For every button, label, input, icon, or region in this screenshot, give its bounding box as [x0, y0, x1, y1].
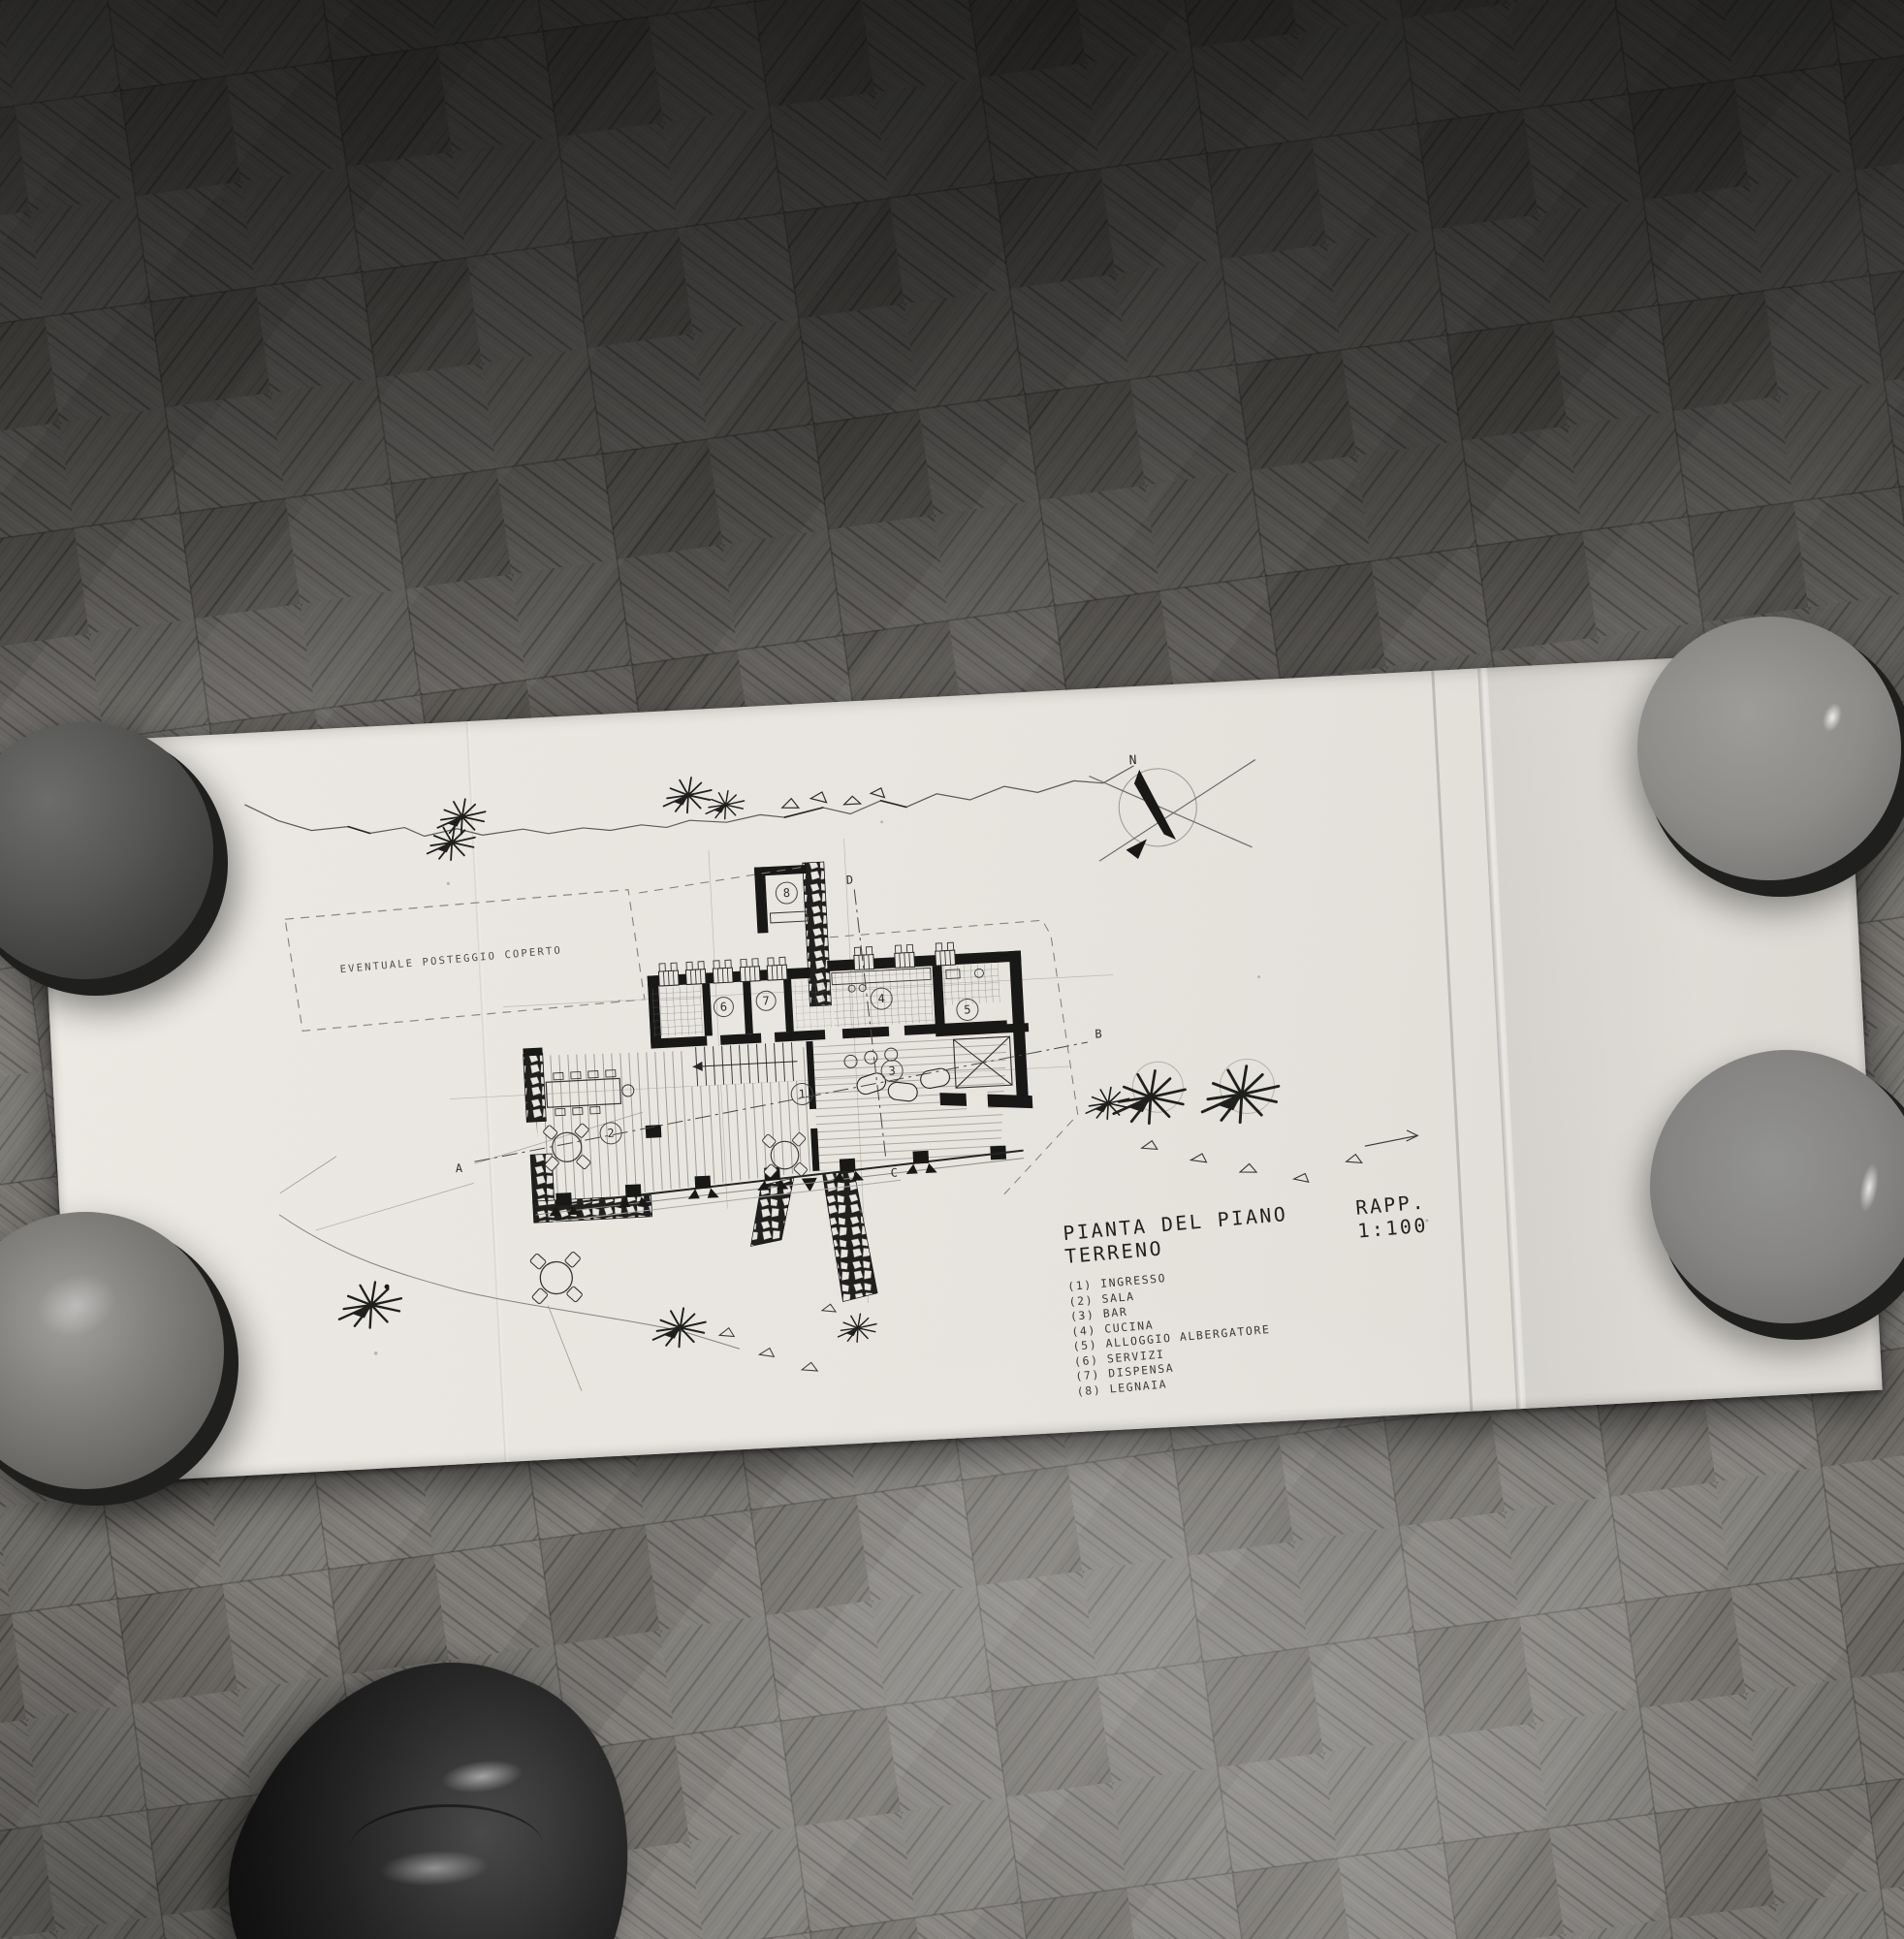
- section-marker-b: B: [1095, 1027, 1102, 1040]
- tree-symbol: [1085, 1087, 1130, 1121]
- drawing-caption: PIANTA DEL PIANO TERRENO RAPP. 1:100 (1)…: [1062, 1186, 1492, 1400]
- stone-wall: [524, 1053, 547, 1122]
- photo-scene: N EVENTUALE POSTEGGIO COPERTO: [0, 0, 1904, 1939]
- tree-symbol: [651, 1307, 707, 1348]
- section-marker-c: C: [890, 1165, 898, 1179]
- architectural-drawing-sheet: N EVENTUALE POSTEGGIO COPERTO: [35, 650, 1882, 1485]
- stairs: [688, 1041, 805, 1086]
- tree-symbol: [662, 777, 713, 814]
- compass-north-label: N: [1128, 753, 1137, 768]
- room-number: 2: [607, 1127, 615, 1140]
- room-legend: (1)INGRESSO (2)SALA (3)BAR (4)CUCINA (5)…: [1067, 1244, 1493, 1400]
- bowl-surface: [1637, 617, 1901, 880]
- room-number: 3: [888, 1064, 896, 1077]
- door-gap: [966, 1090, 988, 1111]
- room-number: 4: [877, 992, 885, 1005]
- tiled-floor: [651, 986, 703, 1037]
- room-number: 6: [719, 1000, 727, 1013]
- tree-symbol: [337, 1281, 402, 1329]
- drawing-scale: RAPP. 1:100: [1354, 1186, 1481, 1243]
- ceramic-bowl-bottom-right: [1650, 1050, 1904, 1323]
- section-marker-a: A: [455, 1161, 463, 1175]
- tree-symbol: [837, 1313, 876, 1343]
- room-number: 1: [798, 1087, 806, 1100]
- ceramic-bowl-top-right: [1637, 617, 1901, 880]
- tree-symbol: [436, 798, 487, 836]
- compass-rose-icon: N: [1088, 747, 1259, 862]
- section-marker-d: D: [845, 873, 853, 886]
- terrain-sketch-top: [245, 754, 1137, 871]
- room-number: 8: [782, 886, 790, 900]
- tree-symbol: [705, 790, 745, 820]
- parking-note: EVENTUALE POSTEGGIO COPERTO: [339, 944, 562, 975]
- bowl-surface: [1650, 1050, 1904, 1323]
- tree-symbol: [1112, 1069, 1188, 1126]
- tree-symbol: [1200, 1065, 1281, 1125]
- building-plan: 8 6 7 4 5 2 1 3: [510, 851, 1042, 1318]
- room-number: 5: [964, 1002, 971, 1016]
- stone-steps: [747, 1178, 797, 1246]
- shelf: [770, 911, 807, 923]
- room-number: 7: [762, 994, 770, 1007]
- parking-outline: EVENTUALE POSTEGGIO COPERTO: [284, 889, 645, 1032]
- tiled-floor: [793, 979, 833, 1030]
- terrain-sketch-right: [1084, 1048, 1420, 1193]
